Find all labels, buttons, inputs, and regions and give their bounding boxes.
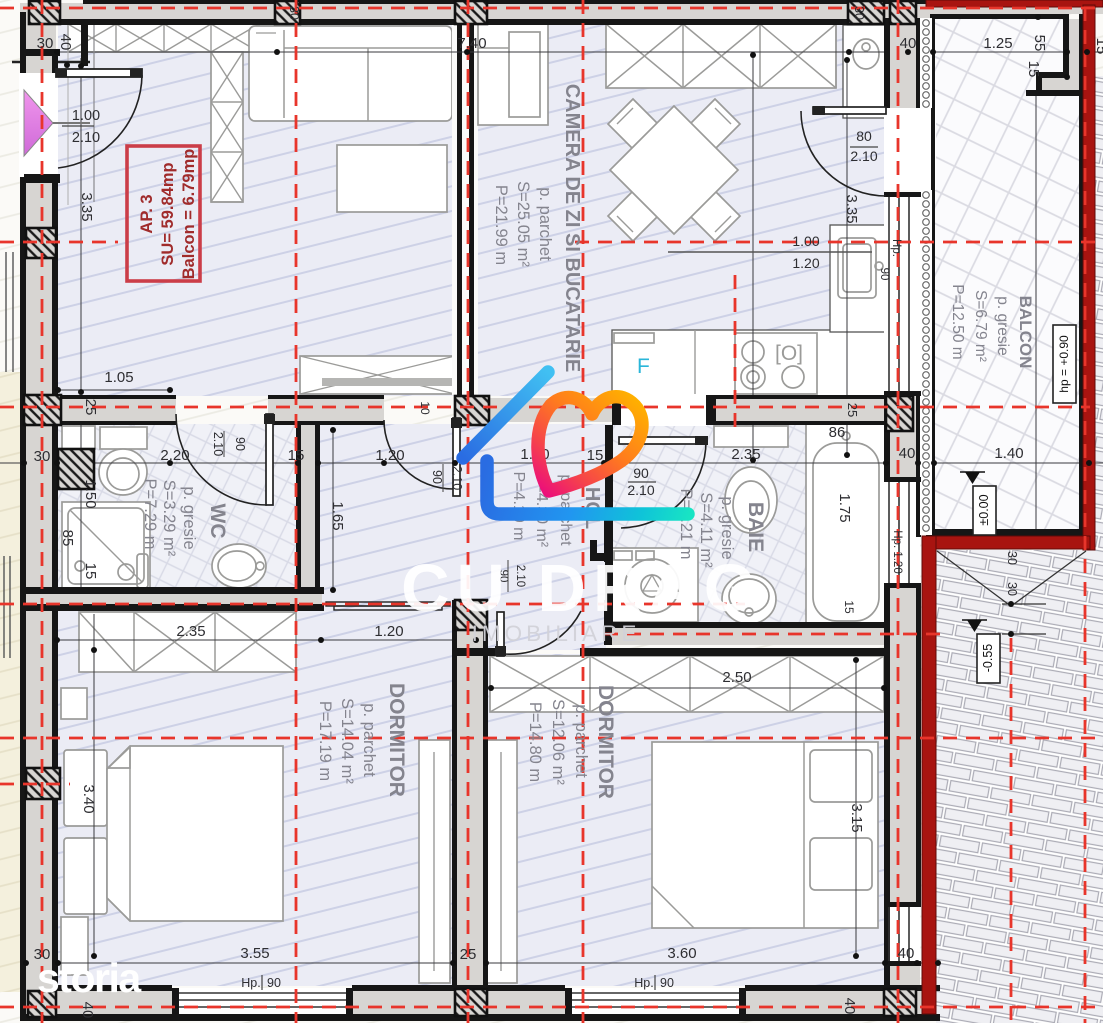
- svg-text:10: 10: [418, 401, 432, 415]
- svg-text:p. parchet: p. parchet: [536, 187, 554, 261]
- svg-text:p. parchet: p. parchet: [572, 704, 590, 778]
- svg-text:90: 90: [878, 268, 890, 281]
- svg-text:7.40: 7.40: [457, 35, 486, 52]
- svg-text:40: 40: [900, 35, 917, 52]
- svg-text:1.40: 1.40: [994, 445, 1023, 462]
- svg-text:1.20: 1.20: [374, 623, 403, 640]
- svg-text:p. parchet: p. parchet: [360, 703, 378, 777]
- svg-text:BALCON: BALCON: [1016, 296, 1035, 369]
- svg-text:85: 85: [59, 530, 76, 547]
- svg-text:90: 90: [267, 976, 281, 990]
- svg-text:40: 40: [898, 945, 915, 962]
- svg-text:1.00: 1.00: [72, 108, 100, 124]
- svg-text:2.10: 2.10: [450, 466, 464, 490]
- svg-text:3.35: 3.35: [843, 194, 860, 223]
- svg-text:1.25: 1.25: [983, 35, 1012, 52]
- svg-text:25: 25: [845, 403, 860, 417]
- svg-text:40: 40: [841, 998, 858, 1015]
- svg-text:hp = +0.90: hp = +0.90: [1057, 335, 1071, 393]
- svg-text:F: F: [637, 355, 650, 378]
- svg-text:2.10: 2.10: [627, 482, 654, 498]
- svg-text:15: 15: [1093, 38, 1103, 55]
- svg-text:P=12.50 m: P=12.50 m: [949, 284, 966, 359]
- svg-text:15: 15: [1025, 61, 1042, 78]
- svg-text:P=17.19 m: P=17.19 m: [316, 701, 334, 781]
- svg-text:S=3.29 m²: S=3.29 m²: [160, 480, 178, 557]
- svg-text:Hp. 1.20: Hp. 1.20: [891, 530, 903, 573]
- svg-text:CU DRAG: CU DRAG: [401, 551, 763, 626]
- svg-text:1.20: 1.20: [375, 447, 404, 464]
- svg-text:80: 80: [856, 128, 872, 144]
- svg-text:3.15: 3.15: [848, 803, 865, 832]
- svg-text:40: 40: [899, 445, 916, 462]
- svg-text:S=12.06 m²: S=12.06 m²: [549, 699, 567, 785]
- svg-text:30: 30: [1005, 551, 1019, 565]
- svg-text:DORMITOR: DORMITOR: [385, 683, 408, 797]
- svg-text:30: 30: [852, 6, 866, 20]
- svg-text:1.20: 1.20: [792, 255, 819, 271]
- svg-text:86: 86: [829, 424, 846, 441]
- svg-text:2.10: 2.10: [211, 432, 225, 456]
- svg-text:3.35: 3.35: [78, 192, 95, 221]
- svg-text:1.75: 1.75: [836, 493, 853, 522]
- svg-text:15: 15: [587, 447, 604, 464]
- svg-text:P=21.99 m: P=21.99 m: [492, 185, 510, 265]
- svg-text:-0.55: -0.55: [981, 644, 995, 673]
- svg-text:90: 90: [633, 465, 649, 481]
- svg-text:3.60: 3.60: [667, 945, 696, 962]
- svg-text:S=25.05 m²: S=25.05 m²: [514, 181, 532, 267]
- svg-text:P=4.10 m: P=4.10 m: [510, 472, 527, 541]
- svg-text:25: 25: [82, 399, 99, 416]
- svg-text:3.40: 3.40: [80, 784, 97, 813]
- svg-text:Hp.: Hp.: [241, 976, 260, 990]
- svg-text:DORMITOR: DORMITOR: [594, 685, 617, 799]
- svg-text:2.35: 2.35: [731, 446, 760, 463]
- svg-text:30: 30: [34, 448, 51, 465]
- svg-text:p. gresie: p. gresie: [180, 486, 198, 549]
- svg-text:25: 25: [460, 946, 477, 963]
- svg-text:2.50: 2.50: [722, 669, 751, 686]
- svg-text:S=14.04 m²: S=14.04 m²: [338, 698, 356, 784]
- svg-text:±0.00: ±0.00: [977, 494, 991, 525]
- svg-text:1.00: 1.00: [792, 233, 819, 249]
- svg-text:55: 55: [1031, 35, 1048, 52]
- svg-text:AP. 3: AP. 3: [138, 194, 156, 233]
- svg-text:30: 30: [1005, 582, 1019, 596]
- svg-text:SU= 59.84mp: SU= 59.84mp: [159, 162, 177, 265]
- svg-text:P=14.80 m: P=14.80 m: [526, 702, 544, 782]
- svg-text:40: 40: [79, 1002, 96, 1019]
- svg-text:WC: WC: [206, 504, 229, 539]
- svg-text:2.10: 2.10: [72, 130, 100, 146]
- svg-text:15: 15: [842, 600, 856, 614]
- svg-text:30: 30: [37, 35, 54, 52]
- svg-text:40: 40: [57, 34, 74, 51]
- svg-text:90: 90: [430, 470, 444, 484]
- svg-text:p. gresie: p. gresie: [994, 296, 1011, 355]
- svg-text:1.05: 1.05: [104, 369, 133, 386]
- svg-text:3.55: 3.55: [240, 945, 269, 962]
- svg-text:storia: storia: [37, 955, 142, 1001]
- svg-text:S=6.79 m²: S=6.79 m²: [972, 290, 989, 362]
- svg-text:Hp.: Hp.: [634, 976, 653, 990]
- svg-text:Balcon = 6.79mp: Balcon = 6.79mp: [180, 149, 198, 280]
- svg-text:1.50: 1.50: [82, 479, 99, 508]
- svg-text:2.20: 2.20: [160, 447, 189, 464]
- svg-text:BAIE: BAIE: [744, 502, 767, 552]
- svg-text:1.65: 1.65: [329, 501, 346, 530]
- svg-text:P=7.29 m: P=7.29 m: [141, 478, 159, 549]
- svg-text:IMOBILIARE: IMOBILIARE: [472, 621, 641, 646]
- svg-text:30: 30: [287, 6, 301, 20]
- svg-text:CAMERA DE ZI SI BUCATARIE: CAMERA DE ZI SI BUCATARIE: [561, 84, 583, 373]
- svg-text:2.35: 2.35: [176, 623, 205, 640]
- svg-text:[O]: [O]: [775, 342, 803, 365]
- svg-text:2.10: 2.10: [850, 148, 877, 164]
- svg-text:90: 90: [233, 437, 247, 451]
- svg-text:Hp.: Hp.: [890, 239, 902, 257]
- svg-text:90: 90: [660, 976, 674, 990]
- svg-text:15: 15: [82, 563, 99, 580]
- svg-text:P=8.21 m: P=8.21 m: [677, 488, 695, 559]
- svg-text:15: 15: [288, 447, 305, 464]
